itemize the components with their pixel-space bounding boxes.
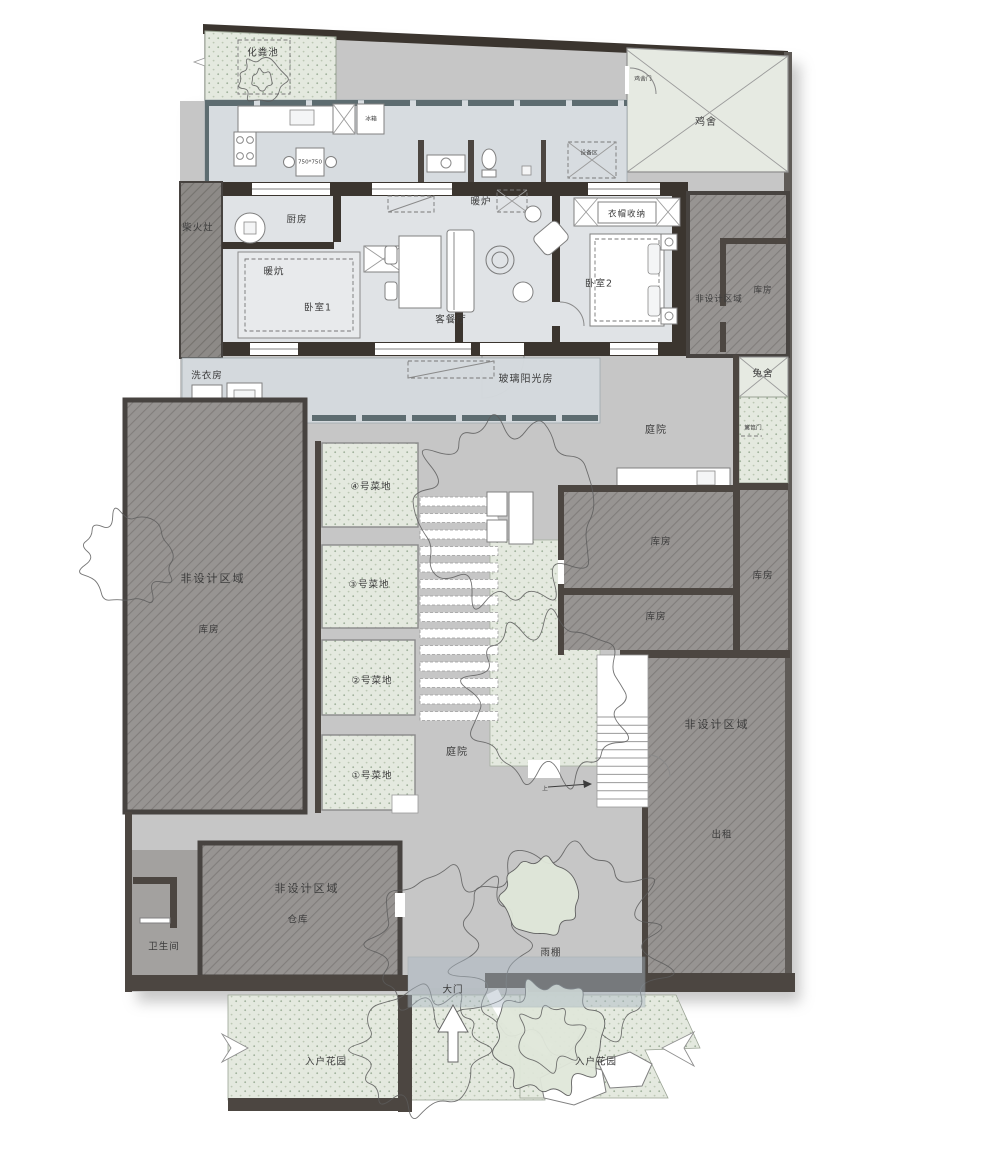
label-storeroom-b: 库房 — [645, 611, 666, 623]
wall-kitchen-living — [333, 196, 341, 242]
label-storeroom-c: 库房 — [752, 570, 773, 582]
label-non-design-warehouse: 非设计区域 — [275, 882, 340, 895]
dining-table — [399, 236, 441, 308]
path-plank — [420, 497, 498, 506]
label-courtyard-east: 庭院 — [645, 423, 667, 436]
outdoor-sink — [509, 492, 533, 544]
storeroom-a-floor — [563, 490, 733, 590]
nightstand — [661, 308, 677, 324]
warehouse-floor — [200, 843, 400, 977]
label-table-size: 750*750 — [298, 160, 322, 166]
stairwell-floor — [597, 655, 648, 807]
bath-partition — [418, 140, 424, 184]
bath-partition — [468, 140, 474, 184]
hutch-west-wall — [733, 355, 739, 485]
floor-plan-stage: 化粪池 鸡舍门 鸡舍 冰箱 设备区 750*750 柴火灶 厨房 暖炉 衣帽收纳… — [0, 0, 1000, 1172]
chicken-coop — [625, 48, 788, 172]
vegetable-plots — [315, 441, 418, 813]
bathroom-wall-w — [125, 812, 132, 992]
path-plank — [420, 662, 498, 671]
bidet — [522, 166, 531, 175]
rain-canopy-overlay — [408, 957, 645, 1007]
bathroom-floor — [131, 850, 200, 976]
storeroom-wall-n — [558, 485, 738, 492]
kitchen-sink — [290, 110, 314, 125]
wall-living-bed2-stub — [552, 326, 560, 342]
nd-right-floor — [688, 193, 788, 356]
label-non-design-rent: 非设计区域 — [685, 718, 750, 731]
label-plot4: ④号菜地 — [350, 481, 391, 493]
path-plank — [420, 712, 498, 721]
label-rain-canopy: 雨棚 — [540, 947, 561, 959]
septic-area — [205, 31, 336, 102]
label-bedroom1: 卧室1 — [304, 302, 332, 314]
label-fridge: 冰箱 — [365, 115, 377, 123]
label-cloak-storage: 衣帽收纳 — [608, 209, 646, 220]
path-plank — [420, 580, 498, 589]
garden-south-wall — [228, 1098, 412, 1111]
label-entry-garden-right: 入户花园 — [575, 1056, 617, 1068]
path-plank — [420, 613, 498, 622]
non-design-left-floor — [125, 400, 305, 812]
path-plank — [420, 695, 498, 704]
label-plot3: ③号菜地 — [348, 579, 389, 591]
plot1-step — [392, 795, 418, 813]
storeroom-wall-ab — [558, 588, 738, 595]
pillow — [648, 286, 660, 316]
coop-door-gap — [625, 66, 629, 94]
planter-box — [487, 492, 507, 516]
label-bathroom: 卫生间 — [148, 941, 180, 953]
wall-kitchen-kang — [222, 242, 334, 249]
label-rent: 出租 — [711, 829, 732, 841]
chair — [326, 157, 337, 168]
label-entry-garden-left: 入户花园 — [305, 1056, 347, 1068]
hutch-south-wall — [733, 483, 788, 490]
label-plot1: ①号菜地 — [351, 770, 392, 782]
north-sunroom — [205, 100, 627, 185]
side-stool — [525, 206, 541, 222]
plots-west-wall — [315, 441, 321, 813]
label-septic-tank: 化粪池 — [247, 47, 279, 59]
label-fence-gate: 篱笆门 — [744, 424, 762, 432]
rent-block — [642, 658, 785, 976]
label-wood-stove: 柴火灶 — [182, 222, 214, 234]
label-plot2: ②号菜地 — [351, 675, 392, 687]
path-plank — [420, 530, 498, 539]
label-storeroom-a: 库房 — [650, 536, 671, 548]
storeroom-b-floor — [563, 595, 733, 650]
label-warehouse: 仓库 — [287, 914, 308, 926]
planter-box — [487, 520, 507, 542]
path-plank — [420, 563, 498, 572]
nd-right-partition-v2 — [720, 322, 726, 352]
label-bedroom2: 卧室2 — [585, 278, 613, 290]
label-non-design-rt: 非设计区域 — [695, 294, 743, 305]
rabbit-run — [739, 397, 788, 483]
bathroom-shelf — [140, 918, 170, 923]
path-plank — [420, 514, 498, 523]
non-design-right-top — [688, 193, 788, 356]
label-living-dining: 客餐厅 — [435, 314, 467, 326]
path-plank — [420, 679, 498, 688]
path-plank — [420, 629, 498, 638]
wood-stove-core — [244, 222, 256, 234]
dining-chair — [385, 282, 397, 300]
label-heater: 暖炉 — [470, 196, 491, 208]
pillow — [648, 244, 660, 274]
toilet — [482, 149, 496, 169]
label-chicken-coop: 鸡舍 — [695, 115, 717, 128]
bathroom-partition-h — [133, 877, 177, 884]
kang-platform — [238, 252, 360, 338]
dining-chair — [385, 246, 397, 264]
pouf — [513, 282, 533, 302]
gas-stove — [234, 132, 256, 166]
nd-right-partition-h — [720, 238, 788, 244]
label-stairs-up: 上 — [542, 785, 548, 793]
sofa — [447, 230, 474, 312]
toilet-tank — [482, 170, 496, 177]
garden-divider-wall — [398, 995, 412, 1112]
path-plank — [420, 547, 498, 556]
floor-plan-drawing: 化粪池 鸡舍门 鸡舍 冰箱 设备区 750*750 柴火灶 厨房 暖炉 衣帽收纳… — [0, 0, 1000, 1172]
label-storeroom-left: 库房 — [198, 624, 219, 636]
label-rabbit-hutch: 兔舍 — [752, 368, 773, 380]
kitchen-counter — [238, 106, 335, 132]
label-equipment-zone: 设备区 — [580, 149, 598, 157]
warehouse-door-gap — [395, 893, 405, 917]
label-kang: 暖炕 — [263, 266, 284, 278]
label-courtyard-center: 庭院 — [446, 745, 468, 758]
bathroom-partition-v — [170, 884, 177, 928]
chair — [284, 157, 295, 168]
east-counter-item — [697, 471, 715, 485]
label-non-design-left: 非设计区域 — [181, 572, 246, 585]
living-door-gap — [480, 343, 524, 355]
bath-partition — [541, 140, 546, 184]
south-wall-west — [125, 975, 408, 991]
label-main-gate: 大门 — [442, 984, 463, 996]
storeroom-wall-mid — [733, 485, 740, 655]
rent-floor — [648, 658, 785, 976]
label-laundry: 洗衣房 — [191, 370, 223, 382]
label-kitchen: 厨房 — [286, 214, 307, 226]
label-storeroom-rt: 库房 — [753, 285, 772, 296]
label-chicken-gate: 鸡舍门 — [634, 75, 652, 83]
label-glass-sunroom: 玻璃阳光房 — [499, 372, 554, 385]
nightstand — [661, 234, 677, 250]
house-west-party-wall — [180, 182, 222, 358]
